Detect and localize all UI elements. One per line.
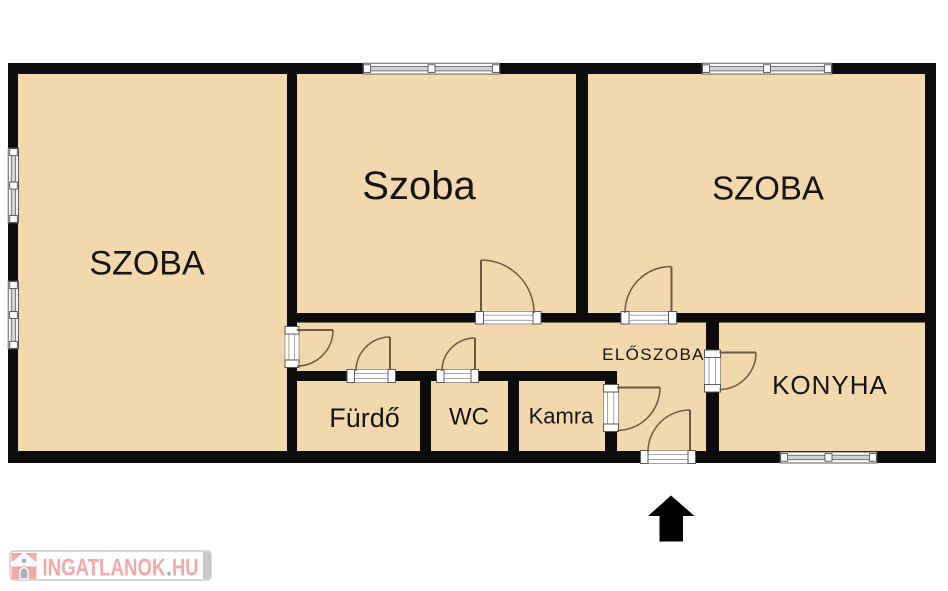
- svg-text:SZOBA: SZOBA: [712, 170, 824, 207]
- svg-text:INGATLANOK: INGATLANOK: [43, 555, 167, 582]
- svg-text:SZOBA: SZOBA: [89, 245, 205, 283]
- svg-text:Kamra: Kamra: [529, 404, 595, 429]
- svg-text:KONYHA: KONYHA: [772, 370, 888, 400]
- svg-text:WC: WC: [449, 404, 489, 431]
- svg-text:Szoba: Szoba: [362, 164, 476, 208]
- svg-text:Fürdő: Fürdő: [329, 403, 400, 433]
- svg-text:HU: HU: [172, 555, 199, 582]
- svg-text:ELŐSZOBA: ELŐSZOBA: [602, 345, 705, 364]
